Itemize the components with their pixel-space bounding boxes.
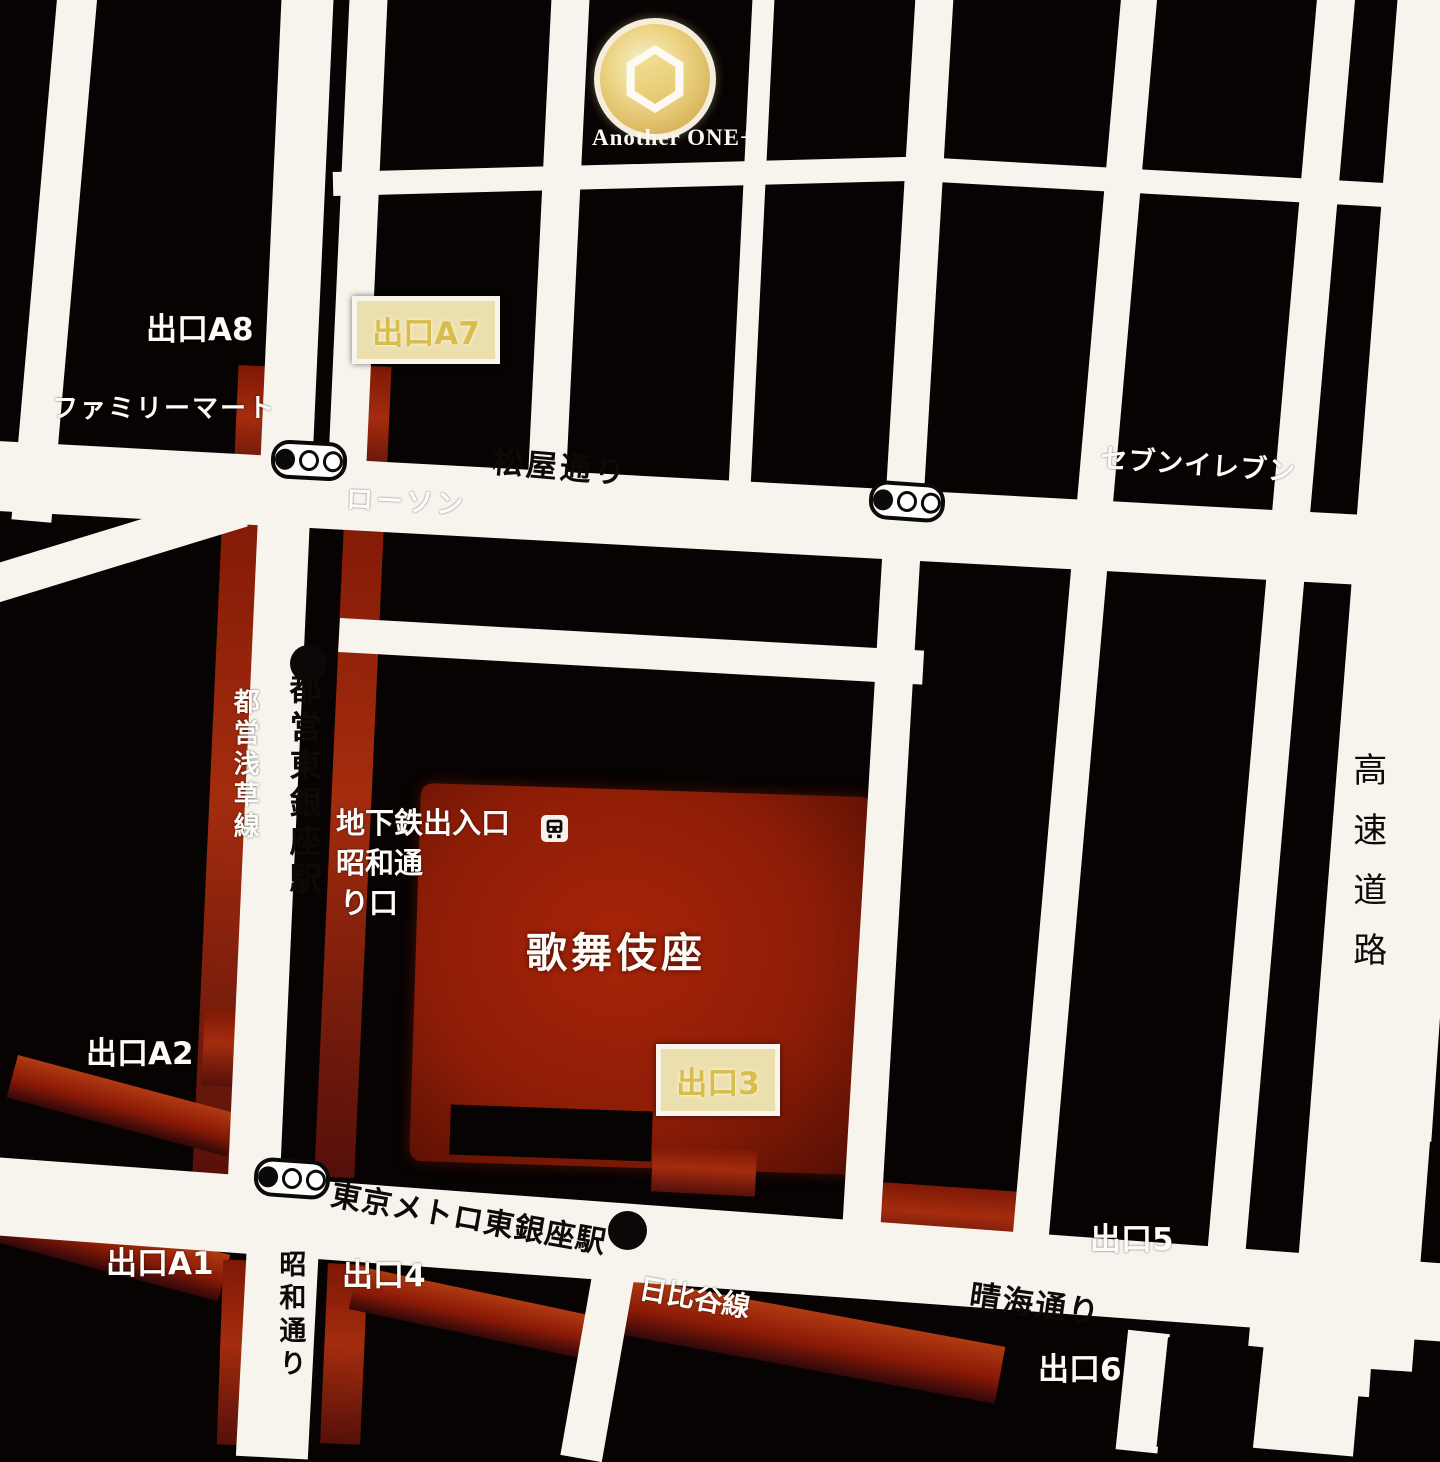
exit-5-label: 出口5 <box>1090 1224 1174 1257</box>
kabukiza-label: 歌舞伎座 <box>526 932 706 975</box>
exit-a8-label: 出口A8 <box>146 314 254 347</box>
traffic-light-matsuya-east <box>868 479 947 523</box>
another-one-label: Another ONE+ <box>592 126 754 150</box>
road-vertical-7 <box>1009 0 1158 1285</box>
exit-6-label: 出口6 <box>1038 1354 1122 1387</box>
traffic-light-lamp-icon <box>322 451 343 473</box>
traffic-light-matsuya-west <box>270 439 348 482</box>
train-icon <box>544 818 565 839</box>
traffic-light-harumi-west <box>253 1156 332 1200</box>
exit-a7-box: 出口A7 <box>352 296 500 364</box>
metro-station-dot <box>608 1211 647 1250</box>
subway-entrance-label-1: 地下鉄出入口 <box>336 808 510 838</box>
hexagon-icon <box>624 45 686 113</box>
traffic-light-lamp-icon <box>257 1166 278 1188</box>
another-one-logo <box>594 18 716 140</box>
road-vertical-4 <box>528 0 590 488</box>
traffic-light-lamp-icon <box>896 490 917 512</box>
road-vertical-5 <box>728 0 775 510</box>
exit-3-box: 出口3 <box>656 1044 780 1116</box>
road-mid-horizontal <box>338 618 924 685</box>
traffic-light-lamp-icon <box>274 448 295 470</box>
exit-4-label: 出口4 <box>342 1260 426 1293</box>
subway-entrance-label-2: 昭和通 <box>336 848 423 878</box>
kabukiza-south-prong <box>651 1145 757 1196</box>
expressway-label: 高速道路 <box>1348 752 1384 992</box>
traffic-light-lamp-icon <box>920 492 941 514</box>
traffic-light-lamp-icon <box>872 489 893 511</box>
exit-a1-label: 出口A1 <box>106 1248 214 1281</box>
toei-station-label: 都営東銀座駅 <box>286 672 320 900</box>
traffic-light-lamp-icon <box>305 1169 326 1191</box>
block-southeast-corner <box>1365 1369 1440 1455</box>
traffic-light-lamp-icon <box>281 1167 302 1189</box>
road-vertical-1 <box>11 0 97 523</box>
exit-a2-label: 出口A2 <box>86 1038 194 1071</box>
showa-dori-label: 昭和通り <box>276 1250 304 1382</box>
asakusa-line-label: 都営浅草線 <box>230 688 257 843</box>
road-vertical-center <box>841 0 954 1252</box>
seveneleven-label: セブンイレブン <box>1099 445 1296 487</box>
subway-entrance-icon <box>541 815 568 842</box>
familymart-label: ファミリーマート <box>52 396 276 423</box>
traffic-light-lamp-icon <box>298 449 319 471</box>
subway-entrance-label-3: り口 <box>340 888 398 918</box>
kabukiza-bottom-notch <box>449 1104 653 1161</box>
road-top-horizontal-east <box>919 157 1440 211</box>
road-top-horizontal-west <box>333 156 933 196</box>
exit-3-label: 出口3 <box>676 1058 760 1103</box>
block-southeast-1 <box>1157 1337 1264 1456</box>
lawson-label: ローソン <box>345 486 466 521</box>
hexagon-inner-icon <box>633 54 677 104</box>
exit-a7-label: 出口A7 <box>372 308 480 353</box>
